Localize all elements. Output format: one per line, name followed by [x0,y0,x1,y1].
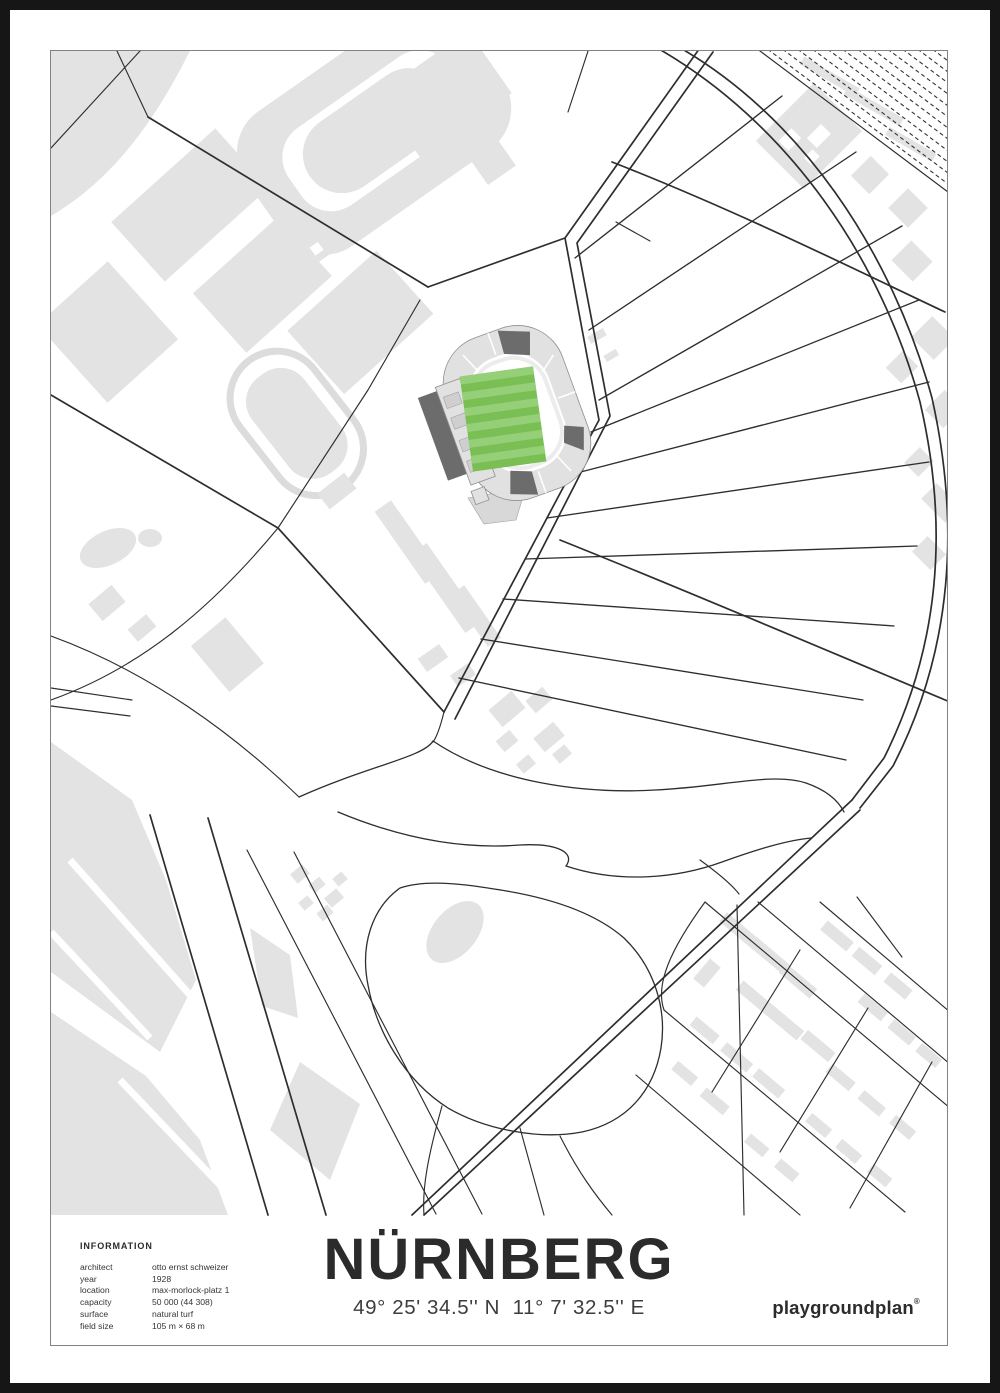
brand-logo: playgroundplan® [772,1297,920,1319]
lake-south [366,883,663,1135]
info-value: 105 m × 68 m [152,1321,205,1333]
map-svg [51,51,947,1216]
map-frame: INFORMATION architect otto ernst schweiz… [50,50,948,1346]
stadium-pitch [460,366,547,471]
poster: INFORMATION architect otto ernst schweiz… [10,10,990,1383]
poster-page: { "poster": { "title": "NÜRNBERG", "coor… [0,0,1000,1393]
registered-mark-icon: ® [914,1297,920,1306]
info-label: field size [80,1321,152,1333]
poster-title: NÜRNBERG [51,1231,947,1289]
info-row: field size 105 m × 68 m [80,1321,229,1333]
stadium [405,312,604,523]
brand-text: playgroundplan [772,1297,914,1318]
